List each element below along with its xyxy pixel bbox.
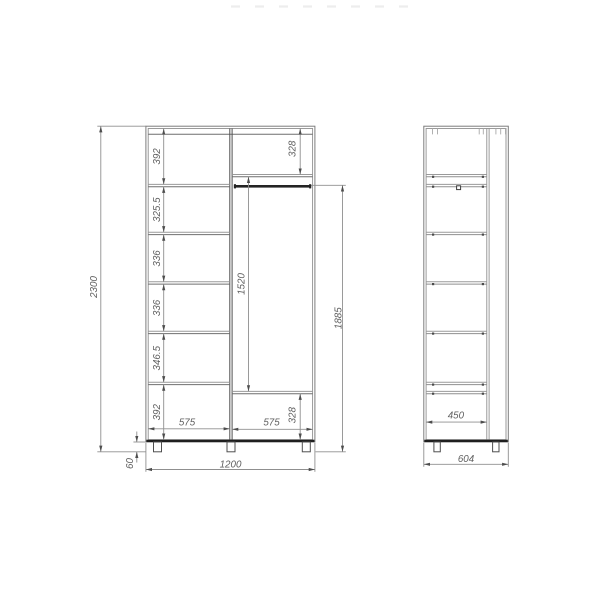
svg-text:2300: 2300 [89,276,100,299]
svg-text:328: 328 [288,140,299,157]
svg-text:1885: 1885 [333,307,344,329]
svg-text:575: 575 [179,417,196,428]
svg-text:1520: 1520 [237,273,248,295]
svg-text:1200: 1200 [220,459,242,470]
svg-text:604: 604 [458,454,475,465]
svg-text:392: 392 [152,148,163,165]
svg-text:325.5: 325.5 [152,197,163,222]
svg-text:336: 336 [152,250,163,267]
svg-text:336: 336 [152,299,163,316]
svg-text:346.5: 346.5 [152,345,163,370]
svg-text:392: 392 [152,403,163,420]
svg-text:328: 328 [288,406,299,423]
svg-text:575: 575 [263,418,280,429]
svg-text:60: 60 [125,458,136,469]
svg-text:450: 450 [448,411,465,422]
